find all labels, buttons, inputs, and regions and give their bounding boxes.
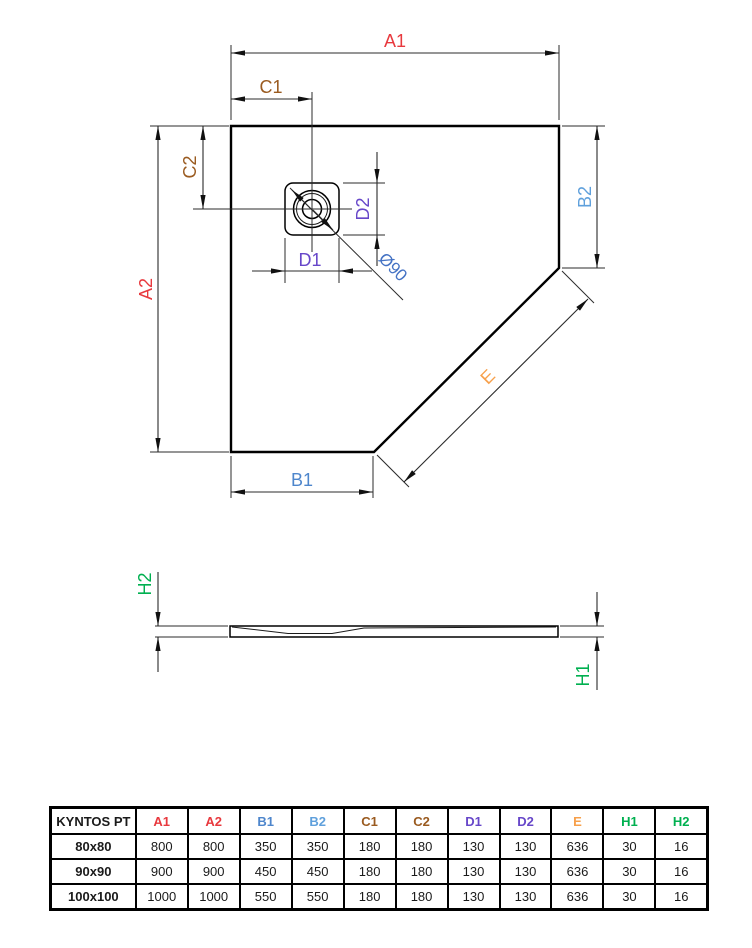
- cell-value: 180: [344, 859, 396, 884]
- row-size-label: 90x90: [51, 859, 136, 884]
- dim-label-b1: B1: [291, 470, 313, 490]
- col-header-d2: D2: [500, 808, 552, 835]
- cell-value: 180: [396, 859, 448, 884]
- cell-value: 130: [500, 834, 552, 859]
- dim-label-d1: D1: [298, 250, 321, 270]
- col-header-b2: B2: [292, 808, 344, 835]
- cell-value: 30: [603, 859, 655, 884]
- cell-value: 636: [551, 859, 603, 884]
- tray-profile-basin: [232, 627, 556, 634]
- table-row: 80x80 800 800 350 350 180 180 130 130 63…: [51, 834, 708, 859]
- cell-value: 550: [240, 884, 292, 910]
- dim-label-a2: A2: [136, 278, 156, 300]
- dimension-b2: B2: [562, 126, 605, 268]
- cell-value: 30: [603, 834, 655, 859]
- table-title: KYNTOS PT: [51, 808, 136, 835]
- dim-label-a1: A1: [384, 31, 406, 51]
- col-header-a1: A1: [136, 808, 188, 835]
- cell-value: 450: [240, 859, 292, 884]
- col-header-c1: C1: [344, 808, 396, 835]
- tray-outline: [231, 126, 559, 452]
- cell-value: 350: [240, 834, 292, 859]
- dim-label-diameter: Ø90: [375, 249, 411, 285]
- dimension-c1: C1: [231, 77, 312, 99]
- dimension-h1: H1: [573, 592, 597, 690]
- cell-value: 130: [500, 859, 552, 884]
- table-row: 100x100 1000 1000 550 550 180 180 130 13…: [51, 884, 708, 910]
- col-header-d1: D1: [448, 808, 500, 835]
- table-header-row: KYNTOS PT A1 A2 B1 B2 C1 C2 D1 D2 E H1 H…: [51, 808, 708, 835]
- cell-value: 1000: [136, 884, 188, 910]
- col-header-e: E: [551, 808, 603, 835]
- cell-value: 1000: [188, 884, 240, 910]
- table-row: 90x90 900 900 450 450 180 180 130 130 63…: [51, 859, 708, 884]
- col-header-a2: A2: [188, 808, 240, 835]
- cell-value: 16: [655, 859, 707, 884]
- dim-label-h2: H2: [135, 572, 155, 595]
- cell-value: 180: [344, 834, 396, 859]
- dimension-e: E: [377, 271, 594, 487]
- cell-value: 130: [448, 859, 500, 884]
- row-size-label: 80x80: [51, 834, 136, 859]
- col-header-c2: C2: [396, 808, 448, 835]
- cell-value: 900: [136, 859, 188, 884]
- cell-value: 130: [500, 884, 552, 910]
- cell-value: 550: [292, 884, 344, 910]
- col-header-h2: H2: [655, 808, 707, 835]
- cell-value: 130: [448, 834, 500, 859]
- top-view: A1 C1 A2 C2 B2: [136, 31, 605, 498]
- dim-label-h1: H1: [573, 663, 593, 686]
- dimension-c2: C2: [180, 126, 203, 209]
- e-dimension-line: [404, 299, 588, 482]
- col-header-h1: H1: [603, 808, 655, 835]
- cell-value: 180: [396, 884, 448, 910]
- dim-label-c1: C1: [259, 77, 282, 97]
- cell-value: 130: [448, 884, 500, 910]
- cell-value: 180: [344, 884, 396, 910]
- dim-label-c2: C2: [180, 155, 200, 178]
- e-extension-upper: [562, 271, 594, 303]
- cell-value: 800: [136, 834, 188, 859]
- technical-drawing-page: A1 C1 A2 C2 B2: [0, 0, 752, 948]
- side-view: H2 H1: [135, 572, 604, 690]
- cell-value: 30: [603, 884, 655, 910]
- cell-value: 800: [188, 834, 240, 859]
- cell-value: 900: [188, 859, 240, 884]
- dimensions-table: KYNTOS PT A1 A2 B1 B2 C1 C2 D1 D2 E H1 H…: [49, 806, 709, 911]
- drain: [193, 92, 352, 252]
- cell-value: 16: [655, 834, 707, 859]
- cell-value: 16: [655, 884, 707, 910]
- cell-value: 180: [396, 834, 448, 859]
- dimension-a1: A1: [231, 31, 559, 120]
- dim-label-b2: B2: [575, 186, 595, 208]
- cell-value: 636: [551, 884, 603, 910]
- cell-value: 350: [292, 834, 344, 859]
- dimension-diameter: Ø90: [290, 188, 411, 300]
- dim-label-e: E: [476, 365, 499, 388]
- dim-label-d2: D2: [353, 197, 373, 220]
- col-header-b1: B1: [240, 808, 292, 835]
- cell-value: 636: [551, 834, 603, 859]
- dimension-h2: H2: [135, 572, 158, 672]
- cell-value: 450: [292, 859, 344, 884]
- dimension-b1: B1: [231, 456, 373, 498]
- row-size-label: 100x100: [51, 884, 136, 910]
